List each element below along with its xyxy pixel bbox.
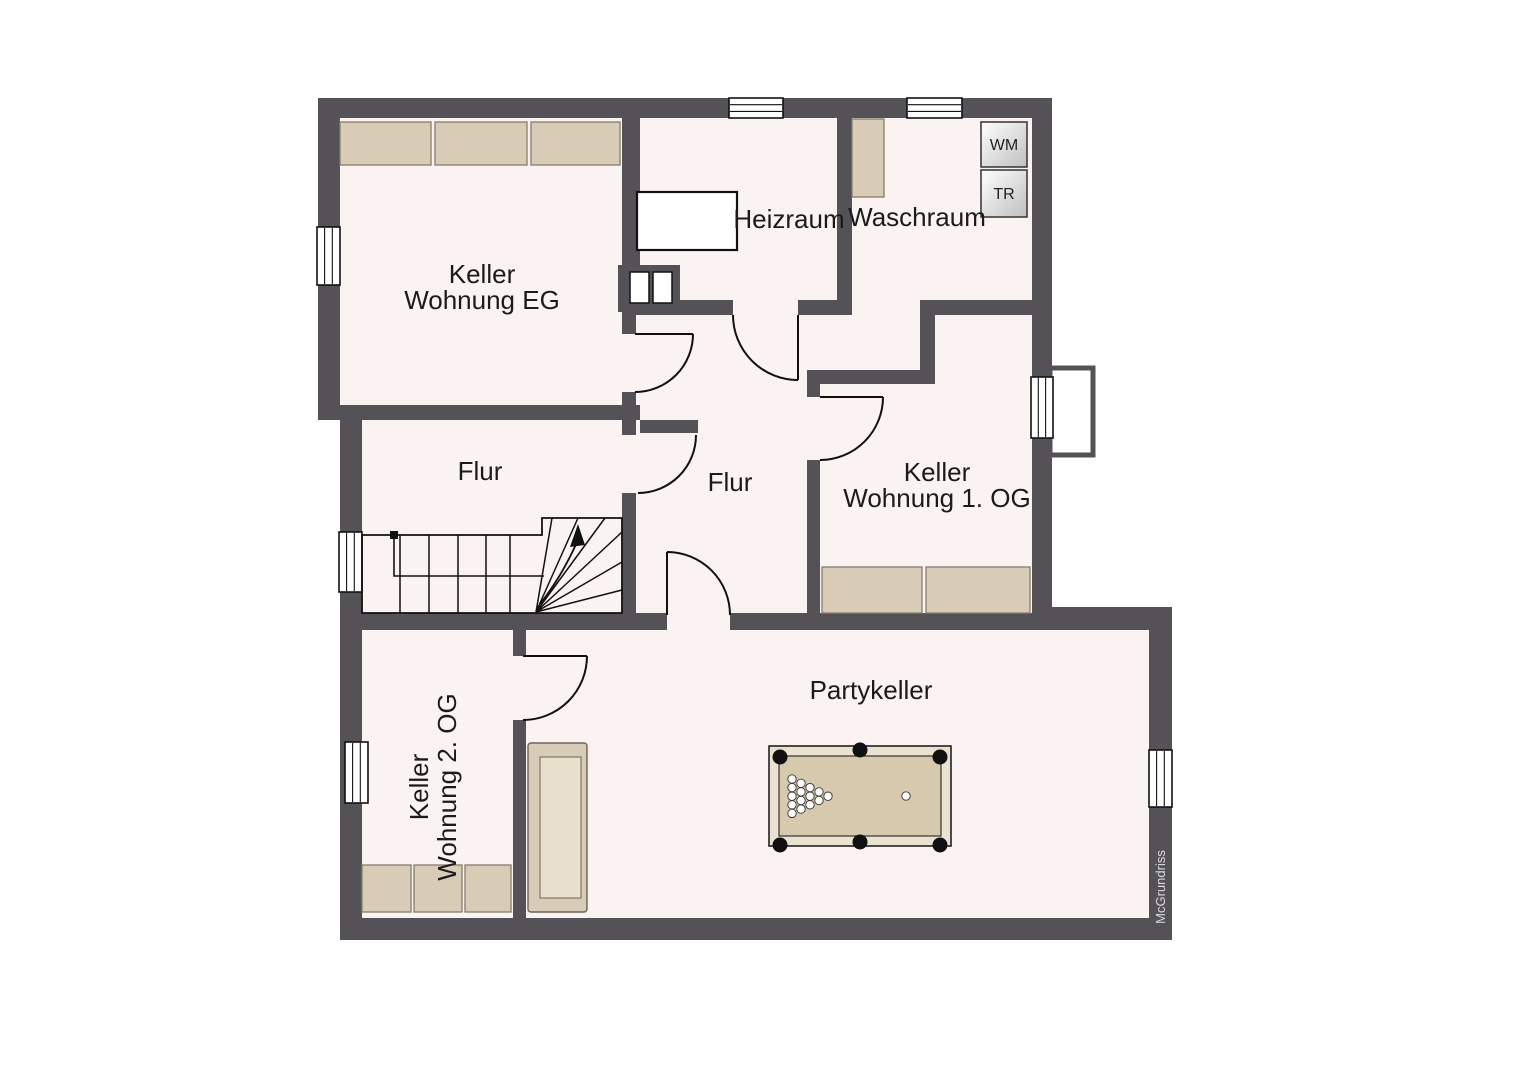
shelf-og2	[362, 865, 411, 912]
counter-waschraum	[852, 119, 884, 197]
room-label-heizraum: Heizraum	[733, 204, 844, 234]
window-icon	[1031, 377, 1053, 438]
wall-og1-top	[807, 370, 933, 384]
chimney-flue-icon	[653, 272, 672, 303]
floor-plan: WM TR Keller Wohnung EG Heizraum Waschra…	[0, 0, 1528, 1080]
wall-flur-stub-v	[622, 420, 636, 435]
wall-waschraum-south	[920, 300, 1032, 315]
shelf-og2	[465, 865, 511, 912]
shelf-eg	[435, 122, 527, 165]
pool-table	[769, 743, 951, 853]
wall-og1-left-stub	[807, 384, 820, 397]
stair-handrail-post	[390, 531, 398, 539]
appliances: WM TR	[981, 122, 1027, 217]
wall-heizraum-south-left	[636, 300, 733, 315]
cue-ball	[902, 792, 910, 800]
shelf-og1	[926, 567, 1030, 613]
shelf-og1	[822, 567, 922, 613]
window-icon	[907, 98, 962, 118]
room-label-keller-og1-line2: Wohnung 1. OG	[843, 483, 1030, 513]
watermark-text: McGrundriss	[1153, 850, 1168, 924]
wall-middle-band-left	[340, 613, 667, 630]
window-icon	[1149, 750, 1172, 807]
watermark: McGrundriss	[1153, 850, 1168, 924]
room-label-waschraum: Waschraum	[848, 202, 986, 232]
wall-flur-stairs	[622, 493, 636, 615]
window-icon	[339, 532, 362, 592]
wall-right-upper	[1032, 98, 1052, 628]
wall-eg-flur-stub-upper	[622, 312, 636, 334]
wall-og2-partykeller-upper	[513, 630, 526, 656]
wall-middle-band-right	[730, 613, 1172, 630]
wall-og2-partykeller-lower	[513, 720, 526, 918]
wall-bottom	[340, 918, 1172, 940]
window-icon	[729, 98, 783, 118]
washing-machine-label: WM	[990, 137, 1018, 154]
dryer-label: TR	[993, 186, 1014, 203]
room-label-flur-links: Flur	[458, 456, 503, 486]
room-label-keller-eg-line2: Wohnung EG	[404, 285, 560, 315]
room-label-flur-mitte: Flur	[708, 467, 753, 497]
room-label-keller-og2-line2: Wohnung 2. OG	[432, 693, 462, 880]
furnace-icon	[637, 192, 737, 250]
window-icon	[345, 742, 368, 803]
wall-eg-south	[318, 405, 640, 420]
wall-flur-stub-h	[640, 420, 698, 433]
wall-og1-left	[807, 460, 820, 613]
light-well	[1050, 368, 1093, 455]
shelf-eg	[340, 122, 431, 165]
wall-left-lower	[340, 405, 362, 940]
pool-table-surface	[779, 756, 941, 836]
chimney-flue-icon	[630, 272, 649, 303]
sofa	[528, 743, 587, 912]
room-label-partykeller: Partykeller	[810, 675, 933, 705]
shelf-eg	[531, 122, 620, 165]
window-icon	[317, 227, 340, 285]
room-label-keller-og2-line1: Keller	[404, 753, 434, 820]
